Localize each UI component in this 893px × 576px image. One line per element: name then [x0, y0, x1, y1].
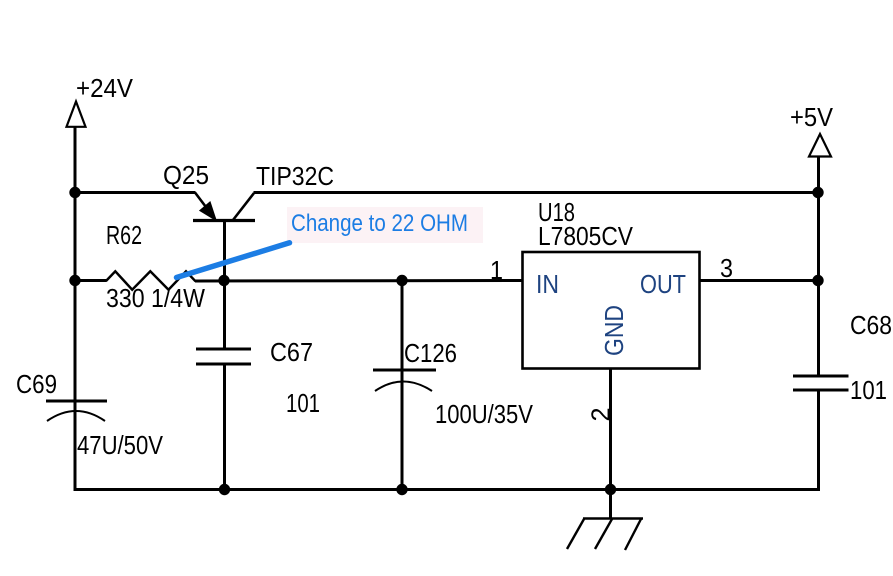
svg-text:3: 3: [720, 253, 733, 283]
svg-text:R62: R62: [106, 220, 142, 250]
svg-text:L7805CV: L7805CV: [538, 221, 634, 251]
svg-text:47U/50V: 47U/50V: [77, 430, 164, 460]
svg-text:1: 1: [490, 255, 503, 285]
svg-text:+24V: +24V: [76, 73, 134, 103]
svg-text:Q25: Q25: [163, 160, 209, 190]
svg-text:101: 101: [286, 388, 320, 418]
svg-text:C68: C68: [850, 310, 892, 340]
svg-text:330 1/4W: 330 1/4W: [106, 283, 205, 313]
svg-text:TIP32C: TIP32C: [256, 161, 334, 191]
svg-text:Change to 22 OHM: Change to 22 OHM: [291, 210, 468, 237]
svg-text:100U/35V: 100U/35V: [435, 399, 534, 429]
svg-text:OUT: OUT: [640, 269, 686, 299]
svg-text:C126: C126: [404, 338, 457, 368]
svg-text:IN: IN: [536, 269, 559, 299]
svg-text:101: 101: [850, 375, 887, 405]
svg-text:C67: C67: [270, 337, 313, 367]
svg-text:C69: C69: [16, 369, 57, 399]
svg-text:+5V: +5V: [790, 102, 834, 132]
svg-text:GND: GND: [599, 305, 629, 356]
